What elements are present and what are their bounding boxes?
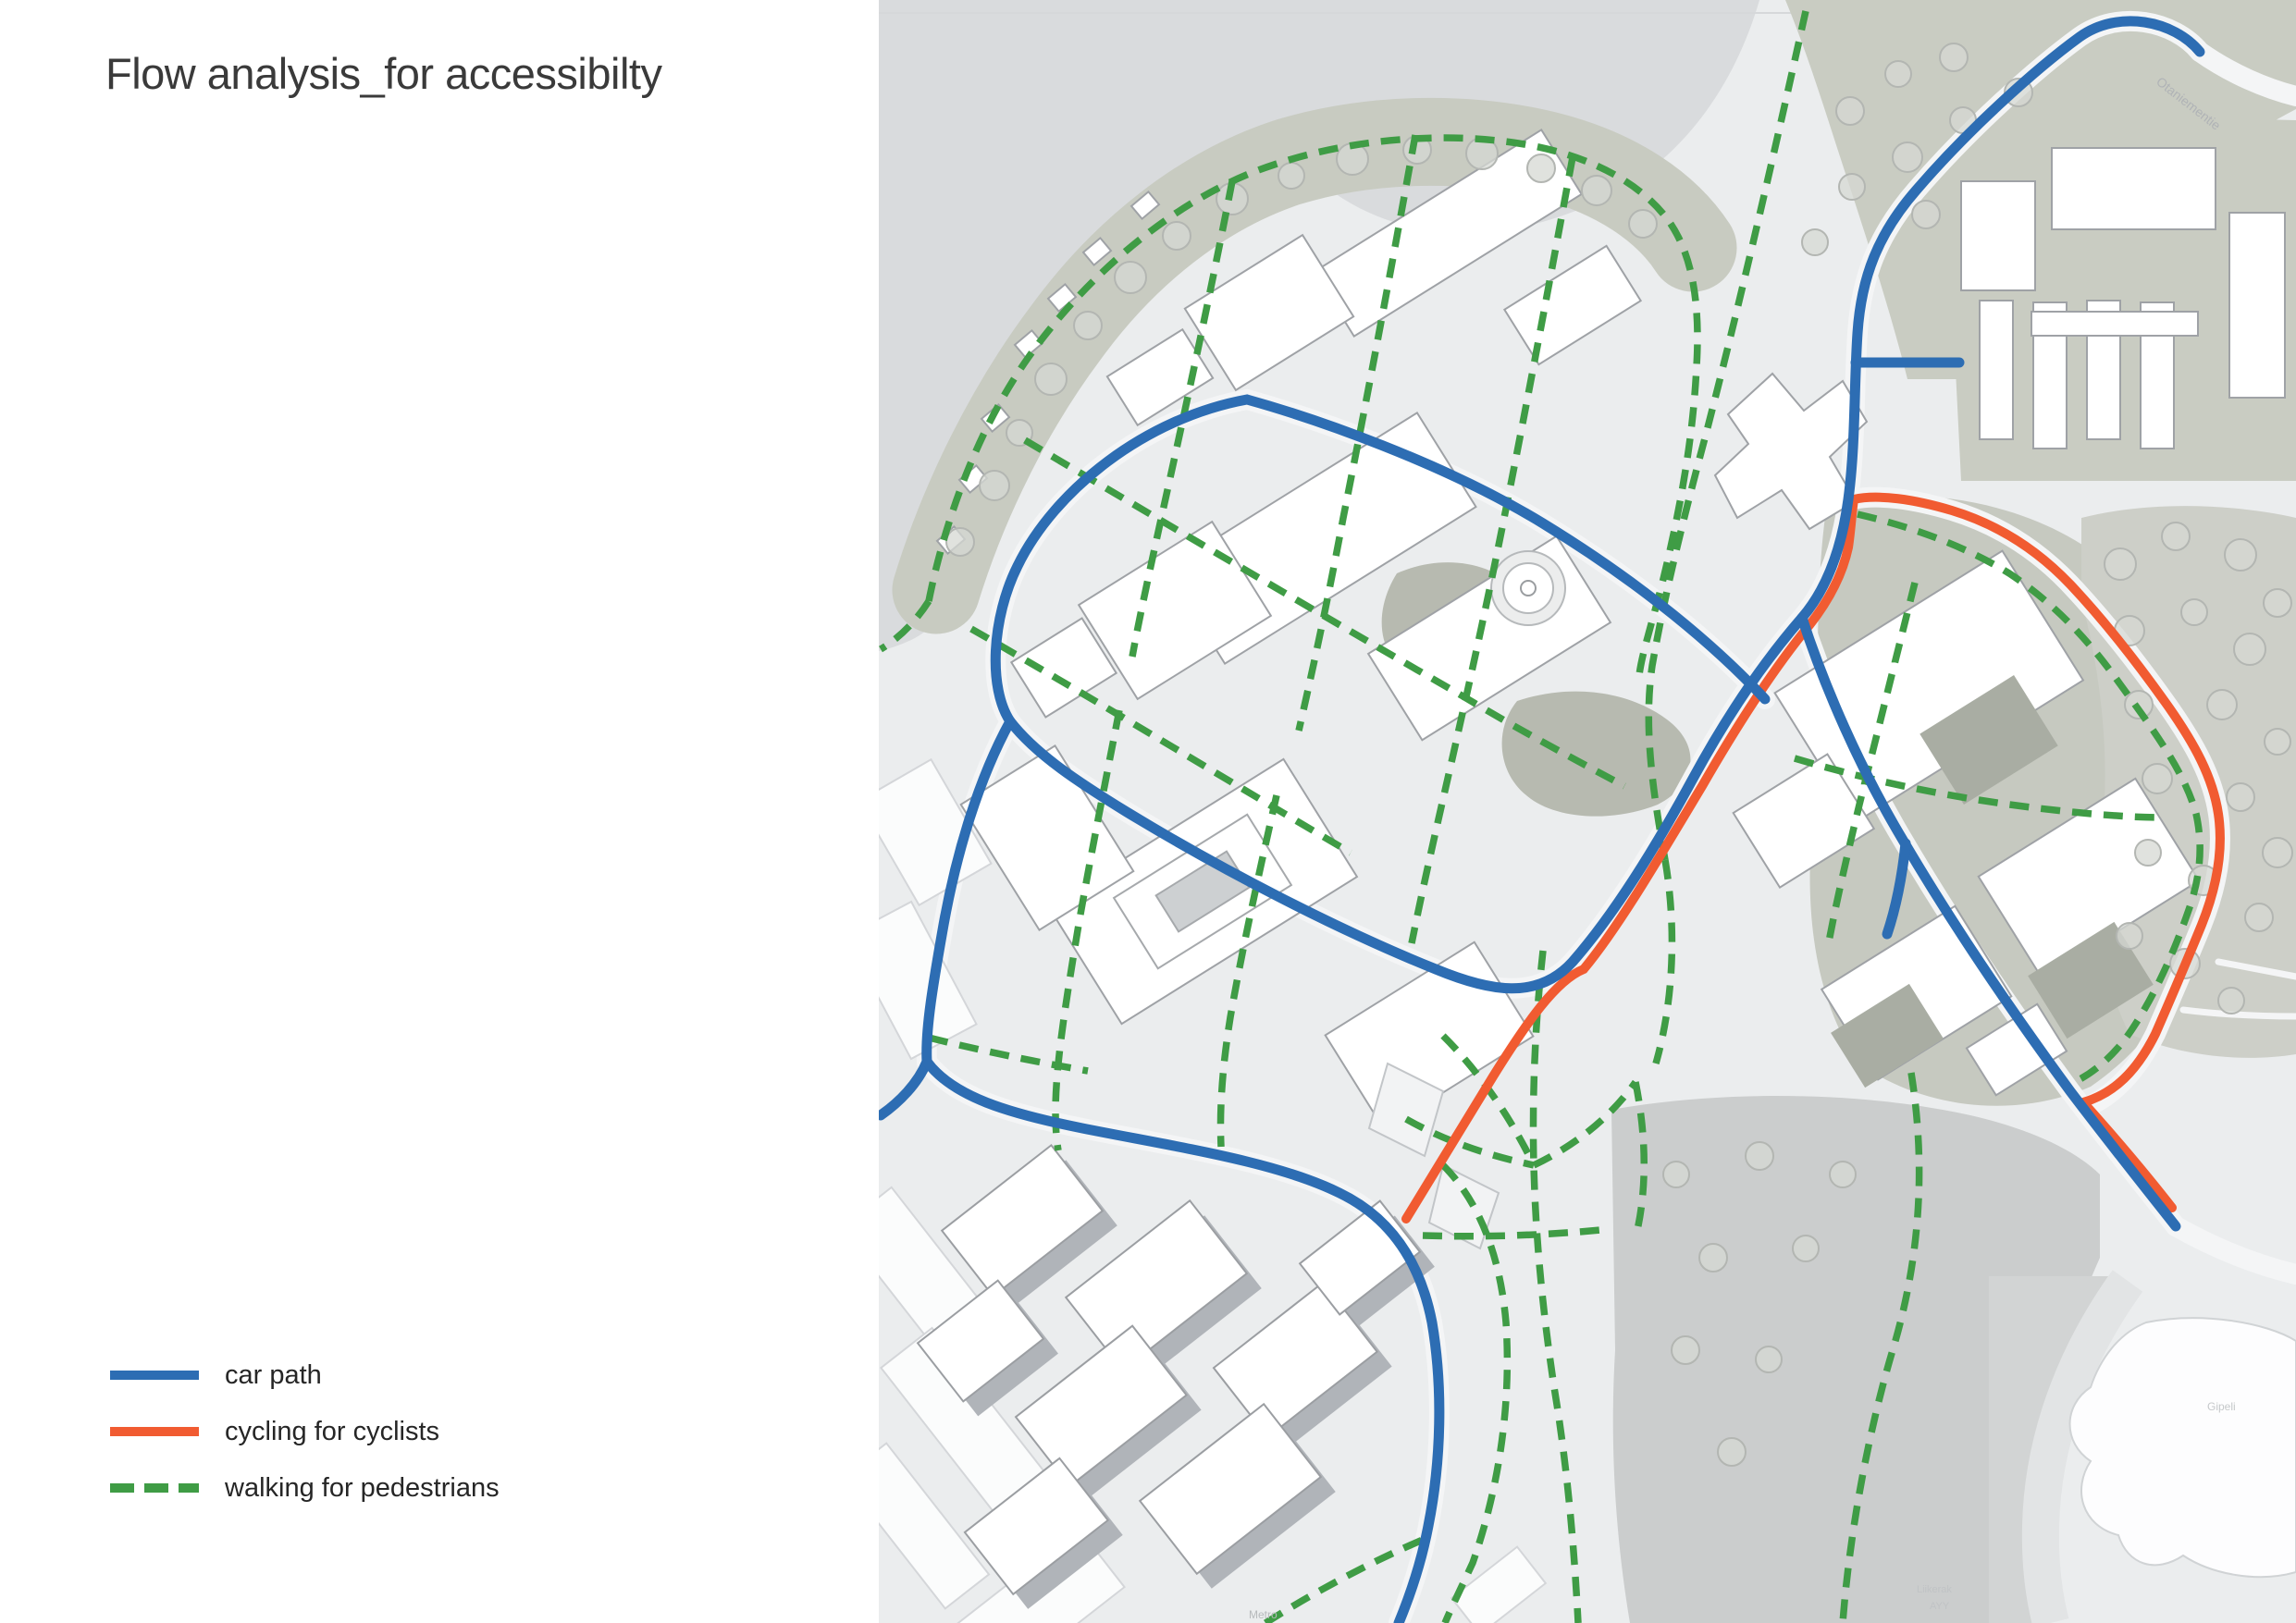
building-label-gipeli: Gipeli: [2207, 1400, 2236, 1413]
building-label-ayy: AYY: [1930, 1601, 1950, 1612]
legend-item-cycling: cycling for cyclists: [108, 1418, 439, 1445]
cycling-line-swatch: [108, 1421, 201, 1442]
circular-plaza: [1491, 551, 1565, 625]
legend-item-walking: walking for pedestrians: [108, 1474, 500, 1502]
site-plan-map: Otaniementie Metro Liikerak AYY Gipeli: [879, 0, 2296, 1623]
page-title: Flow analysis_for accessibilty: [105, 48, 661, 99]
slide: Flow analysis_for accessibilty car path …: [0, 0, 2296, 1623]
car-path-line-swatch: [108, 1365, 201, 1385]
left-panel: Flow analysis_for accessibilty car path …: [0, 0, 879, 1623]
metro-label: Metro: [1249, 1608, 1278, 1621]
legend-label-car-path: car path: [225, 1360, 322, 1391]
legend-item-car-path: car path: [108, 1361, 322, 1389]
legend-label-cycling: cycling for cyclists: [225, 1417, 439, 1447]
legend-label-walking: walking for pedestrians: [225, 1473, 500, 1504]
walking-line-swatch: [108, 1478, 201, 1498]
map-canvas: Otaniementie Metro Liikerak AYY Gipeli: [879, 0, 2296, 1623]
building-label-liikerak: Liikerak: [1917, 1584, 1952, 1595]
